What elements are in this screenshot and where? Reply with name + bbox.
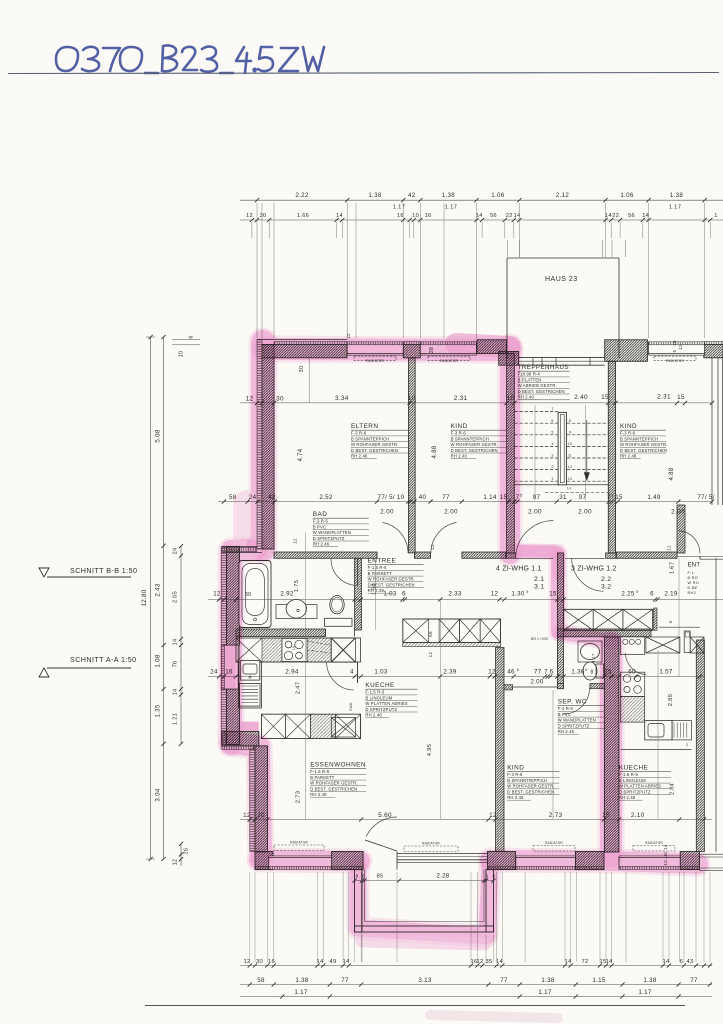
svg-text:2.00: 2.00 [578, 509, 592, 516]
svg-text:RADIATOR: RADIATOR [666, 359, 684, 363]
svg-text:W WANDPLATTEN: W WANDPLATTEN [313, 530, 351, 535]
svg-text:14: 14 [173, 689, 179, 696]
svg-text:5.08: 5.08 [155, 429, 162, 443]
svg-text:1.35: 1.35 [155, 704, 162, 718]
svg-text:3.13: 3.13 [418, 977, 432, 984]
svg-text:F-3 R-5: F-3 R-5 [313, 519, 329, 524]
svg-text:F-1.5 R-5: F-1.5 R-5 [365, 690, 385, 695]
svg-text:B RO: B RO [688, 576, 698, 580]
svg-text:D BEST. GESTRICHEN: D BEST. GESTRICHEN [451, 448, 498, 453]
svg-text:30: 30 [260, 213, 267, 219]
svg-text:B SPANNTRIPPICH: B SPANNTRIPPICH [507, 778, 547, 783]
svg-text:W ROHFASER GESTR.: W ROHFASER GESTR. [351, 442, 398, 447]
svg-text:1.17: 1.17 [538, 989, 552, 996]
svg-text:12: 12 [428, 652, 433, 658]
svg-text:7: 7 [551, 407, 553, 411]
svg-text:2.22: 2.22 [295, 192, 309, 199]
svg-text:SCHNITT B-B 1:50: SCHNITT B-B 1:50 [70, 566, 137, 575]
svg-text:RH 2.48: RH 2.48 [507, 795, 524, 800]
svg-text:1.38: 1.38 [368, 192, 382, 199]
svg-text:BAD: BAD [313, 511, 328, 518]
svg-text:1.38: 1.38 [442, 192, 456, 199]
svg-text:KIND: KIND [507, 765, 524, 772]
svg-text:2.39: 2.39 [443, 669, 457, 676]
svg-text:RH2: RH2 [688, 591, 697, 595]
svg-text:1.50: 1.50 [372, 583, 378, 595]
svg-text:22: 22 [506, 213, 513, 219]
svg-text:D BEST. GESTRICHEN: D BEST. GESTRICHEN [310, 786, 357, 791]
svg-text:56: 56 [490, 213, 497, 219]
svg-text:F-3 R-6: F-3 R-6 [558, 706, 574, 711]
svg-text:RH 2.46: RH 2.46 [558, 729, 575, 734]
svg-text:1.17: 1.17 [445, 205, 457, 211]
svg-text:1.06: 1.06 [491, 192, 505, 199]
svg-text:RH 2.40: RH 2.40 [451, 454, 468, 459]
svg-text:RADIATOR: RADIATOR [422, 842, 440, 846]
svg-text:1.38: 1.38 [295, 977, 309, 984]
svg-text:2.00: 2.00 [380, 509, 394, 516]
svg-text:B LINOLEUM: B LINOLEUM [365, 695, 392, 700]
svg-text:W ROHFASER GESTR.: W ROHFASER GESTR. [507, 784, 554, 789]
svg-text:2.00: 2.00 [528, 509, 542, 516]
svg-text:2.31: 2.31 [657, 394, 671, 401]
svg-text:12: 12 [568, 465, 572, 469]
svg-text:14: 14 [336, 213, 343, 219]
svg-text:W PLATTEN ABRIES: W PLATTEN ABRIES [365, 701, 407, 706]
svg-text:W RO: W RO [688, 581, 700, 585]
svg-text:6: 6 [189, 335, 195, 338]
svg-text:77/ 5/ 10: 77/ 5/ 10 [378, 494, 405, 501]
svg-text:W ROHFASER GESTR.: W ROHFASER GESTR. [310, 781, 357, 786]
svg-text:B PVC: B PVC [313, 524, 326, 529]
svg-text:RH 2.40: RH 2.40 [351, 454, 368, 459]
svg-text:1.67: 1.67 [670, 562, 676, 574]
svg-text:4.74: 4.74 [298, 448, 304, 461]
svg-text:2.00: 2.00 [444, 509, 458, 516]
svg-text:B SPANNTEPPICH: B SPANNTEPPICH [351, 436, 389, 441]
svg-text:W ROHFASER GESTR.: W ROHFASER GESTR. [451, 442, 498, 447]
svg-text:77: 77 [442, 494, 450, 501]
svg-text:26: 26 [184, 848, 190, 855]
svg-text:77: 77 [690, 977, 698, 984]
svg-text:1.03: 1.03 [383, 591, 397, 598]
svg-text:35: 35 [485, 959, 492, 965]
svg-text:15: 15 [601, 394, 609, 401]
svg-text:2.73: 2.73 [549, 812, 563, 819]
svg-text:7: 7 [544, 669, 548, 676]
svg-text:55: 55 [428, 631, 433, 637]
svg-text:6: 6 [551, 419, 553, 423]
svg-text:2.19: 2.19 [664, 591, 678, 598]
svg-text:1.08: 1.08 [155, 654, 162, 668]
svg-text:6: 6 [402, 591, 406, 598]
svg-text:2.00: 2.00 [530, 679, 544, 686]
svg-text:31: 31 [559, 494, 567, 501]
svg-text:1.38: 1.38 [670, 192, 684, 199]
svg-text:B PARKETT: B PARKETT [368, 571, 393, 576]
svg-text:6: 6 [550, 669, 554, 676]
svg-text:D BEST. GESTRICHEN: D BEST. GESTRICHEN [507, 789, 554, 794]
svg-text:1.21: 1.21 [173, 713, 179, 725]
svg-text:5: 5 [551, 430, 553, 434]
svg-text:2.1: 2.1 [534, 576, 544, 583]
svg-text:8: 8 [569, 419, 571, 423]
svg-text:12: 12 [246, 213, 253, 219]
svg-text:10: 10 [408, 395, 416, 402]
svg-text:F-3 R-6: F-3 R-6 [620, 431, 636, 436]
svg-text:14: 14 [173, 639, 179, 646]
svg-text:11: 11 [568, 454, 572, 458]
svg-text:RH 2.46: RH 2.46 [365, 713, 382, 718]
svg-text:1.06: 1.06 [620, 192, 634, 199]
svg-text:77: 77 [341, 977, 349, 984]
svg-text:40: 40 [419, 494, 427, 501]
svg-text:30: 30 [256, 959, 263, 965]
svg-text:13: 13 [568, 477, 572, 481]
svg-text:12: 12 [678, 344, 683, 350]
svg-text:RADIATOR: RADIATOR [545, 841, 563, 845]
svg-text:42: 42 [408, 192, 416, 199]
svg-text:4.88: 4.88 [669, 467, 675, 480]
svg-text:KUECHE: KUECHE [365, 682, 394, 689]
svg-text:D BEST. GESTRICHEN: D BEST. GESTRICHEN [518, 389, 565, 394]
svg-text:1.57: 1.57 [659, 669, 673, 676]
svg-text:W PLATTEN ABRIES: W PLATTEN ABRIES [619, 784, 661, 789]
svg-text:14: 14 [605, 213, 612, 219]
svg-text:W ABRIEB GESTR.: W ABRIEB GESTR. [518, 383, 557, 388]
svg-text:HAUS 23: HAUS 23 [545, 276, 578, 283]
svg-text:14: 14 [476, 213, 483, 219]
svg-text:24: 24 [210, 669, 218, 676]
svg-text:1.17: 1.17 [638, 989, 652, 996]
svg-text:4: 4 [551, 442, 553, 446]
svg-text:1.36: 1.36 [571, 669, 585, 676]
svg-text:22: 22 [612, 213, 619, 219]
svg-text:4 ZI-WHG 1.1: 4 ZI-WHG 1.1 [496, 566, 542, 573]
svg-text:KIND: KIND [451, 423, 468, 430]
svg-text:D SPRITZPUTZ: D SPRITZPUTZ [365, 707, 397, 712]
svg-text:8: 8 [590, 670, 593, 676]
svg-text:2.00: 2.00 [671, 509, 685, 516]
svg-text:2: 2 [551, 465, 553, 469]
svg-text:2.84: 2.84 [670, 783, 676, 795]
svg-text:1.66: 1.66 [297, 213, 309, 219]
svg-text:3.2: 3.2 [601, 584, 611, 591]
svg-text:15: 15 [677, 394, 685, 401]
svg-text:ENTREE: ENTREE [368, 558, 397, 565]
svg-text:5: 5 [611, 494, 613, 498]
svg-text:F-1.5 R-6: F-1.5 R-6 [310, 769, 330, 774]
svg-text:43: 43 [686, 959, 693, 965]
svg-text:77: 77 [500, 977, 508, 984]
svg-text:1.38: 1.38 [643, 977, 657, 984]
svg-text:3.34: 3.34 [335, 395, 349, 402]
svg-text:60: 60 [628, 669, 636, 676]
svg-text:2.92: 2.92 [280, 591, 294, 598]
svg-text:1.38: 1.38 [541, 977, 555, 984]
svg-text:B PARKETT: B PARKETT [310, 775, 335, 780]
svg-text:2.28: 2.28 [437, 874, 450, 880]
svg-text:2.33: 2.33 [448, 591, 462, 598]
svg-text:RH 2.46: RH 2.46 [313, 542, 330, 547]
svg-text:1.15: 1.15 [592, 977, 606, 984]
svg-text:5: 5 [585, 668, 587, 672]
svg-text:58: 58 [257, 977, 265, 984]
svg-text:2.94: 2.94 [285, 669, 299, 676]
svg-text:5: 5 [517, 668, 519, 672]
svg-text:12: 12 [430, 544, 435, 550]
svg-text:16: 16 [672, 340, 677, 346]
svg-text:49: 49 [329, 959, 336, 965]
svg-text:30: 30 [299, 366, 305, 373]
svg-text:2.10: 2.10 [631, 812, 645, 819]
svg-text:B PVC: B PVC [558, 712, 571, 717]
svg-text:ELTERN: ELTERN [351, 423, 378, 430]
svg-text:2.85: 2.85 [668, 694, 674, 706]
svg-text:F-1.: F-1. [688, 571, 696, 575]
svg-text:5.60: 5.60 [378, 812, 392, 819]
svg-text:12: 12 [243, 959, 250, 965]
svg-text:1.14: 1.14 [483, 494, 497, 501]
svg-text:2.52: 2.52 [319, 494, 333, 501]
svg-text:15: 15 [615, 494, 623, 501]
svg-text:97: 97 [533, 494, 541, 501]
svg-text:16: 16 [397, 213, 404, 219]
svg-text:12: 12 [667, 545, 672, 551]
svg-text:5: 5 [636, 590, 638, 594]
svg-text:3 ZI-WHG 1.2: 3 ZI-WHG 1.2 [571, 566, 617, 573]
svg-text:RH 2.48: RH 2.48 [620, 454, 637, 459]
svg-text:1.30: 1.30 [511, 591, 525, 598]
svg-text:85: 85 [377, 874, 384, 880]
svg-text:F-3 R-6: F-3 R-6 [351, 431, 367, 436]
svg-text:ENT: ENT [688, 563, 701, 569]
svg-text:14: 14 [642, 213, 649, 219]
svg-text:D BEST. GESTRICHEN: D BEST. GESTRICHEN [351, 448, 398, 453]
svg-text:F-3 R-6: F-3 R-6 [451, 431, 467, 436]
svg-text:30: 30 [245, 592, 251, 598]
svg-text:2.47: 2.47 [296, 682, 302, 694]
svg-text:6: 6 [672, 349, 677, 352]
svg-text:9: 9 [569, 430, 571, 434]
svg-text:F-1.5 R-6: F-1.5 R-6 [368, 565, 388, 570]
svg-text:15: 15 [292, 646, 296, 650]
svg-text:D SPRITZPUTZ: D SPRITZPUTZ [558, 723, 590, 728]
svg-text:2.25: 2.25 [621, 591, 635, 598]
svg-text:24: 24 [173, 548, 179, 555]
svg-text:14: 14 [567, 487, 571, 491]
svg-text:12.80: 12.80 [141, 589, 148, 606]
svg-text:4.88: 4.88 [432, 445, 438, 458]
svg-text:1.17: 1.17 [294, 989, 308, 996]
svg-text:SCHNITT A-A 1:50: SCHNITT A-A 1:50 [70, 655, 137, 664]
svg-text:2.12: 2.12 [556, 192, 570, 199]
svg-text:12: 12 [488, 669, 496, 676]
svg-text:RADIATOR: RADIATOR [290, 841, 308, 845]
svg-text:2.73: 2.73 [296, 791, 302, 803]
svg-text:1.49: 1.49 [647, 494, 661, 501]
svg-text:2: 2 [686, 743, 688, 747]
svg-text:10: 10 [568, 442, 572, 446]
svg-text:BR L+200: BR L+200 [531, 637, 549, 641]
svg-text:46: 46 [507, 669, 515, 676]
svg-text:4.95: 4.95 [427, 744, 433, 756]
svg-text:D BE: D BE [688, 586, 698, 590]
svg-text:W ROHFASER GESTR.: W ROHFASER GESTR. [368, 577, 415, 582]
svg-text:12: 12 [489, 812, 497, 819]
svg-text:2.31: 2.31 [454, 395, 468, 402]
svg-text:1: 1 [551, 477, 553, 481]
svg-text:D SPRITZPUTZ: D SPRITZPUTZ [313, 536, 345, 541]
svg-text:1.03: 1.03 [374, 669, 388, 676]
svg-text:KIND: KIND [620, 423, 637, 430]
svg-text:3.1: 3.1 [534, 584, 544, 591]
svg-text:2.2: 2.2 [601, 576, 611, 583]
svg-text:97: 97 [579, 494, 587, 501]
svg-text:12: 12 [491, 591, 499, 598]
svg-text:2.43: 2.43 [155, 583, 162, 597]
svg-text:6: 6 [680, 959, 684, 965]
svg-text:12: 12 [293, 538, 298, 544]
svg-text:W WANDPLATTEN: W WANDPLATTEN [558, 718, 596, 723]
svg-text:B SPANNTEPPICH: B SPANNTEPPICH [451, 436, 489, 441]
svg-text:76: 76 [173, 661, 179, 668]
svg-text:2.40: 2.40 [574, 394, 588, 401]
svg-text:1.75: 1.75 [294, 580, 300, 592]
svg-text:77: 77 [534, 669, 542, 676]
svg-text:10: 10 [179, 351, 185, 358]
svg-text:72: 72 [581, 959, 588, 965]
svg-text:77/ 5/: 77/ 5/ [697, 494, 714, 501]
svg-text:B SPANNTEPPICH: B SPANNTEPPICH [620, 436, 658, 441]
svg-text:2.05: 2.05 [173, 591, 179, 603]
svg-text:1.17: 1.17 [669, 205, 681, 211]
svg-text:4: 4 [350, 669, 354, 676]
svg-text:56: 56 [628, 213, 635, 219]
svg-text:5: 5 [526, 590, 528, 594]
svg-text:RAD.: RAD. [349, 701, 353, 710]
svg-text:SEP. WC: SEP. WC [558, 699, 587, 706]
svg-text:10: 10 [412, 213, 419, 219]
svg-text:RH 2.49: RH 2.49 [310, 792, 327, 797]
svg-text:RADIATOR: RADIATOR [645, 841, 663, 845]
svg-text:6: 6 [650, 591, 654, 598]
svg-text:1.17: 1.17 [591, 653, 596, 662]
svg-text:F-3 R-6: F-3 R-6 [507, 772, 523, 777]
svg-text:16: 16 [425, 213, 432, 219]
svg-text:3: 3 [551, 454, 553, 458]
svg-text:ESSENWOHNEN: ESSENWOHNEN [310, 762, 366, 769]
svg-text:1: 1 [714, 213, 717, 219]
svg-text:W ROHFASER GESTR.: W ROHFASER GESTR. [620, 442, 667, 447]
svg-text:3.04: 3.04 [155, 788, 162, 802]
svg-text:TREPPENHAUS: TREPPENHAUS [518, 364, 569, 371]
svg-text:12: 12 [173, 859, 179, 866]
svg-text:4: 4 [668, 620, 673, 623]
svg-text:D BEST. GESTRICHEN: D BEST. GESTRICHEN [620, 448, 667, 453]
